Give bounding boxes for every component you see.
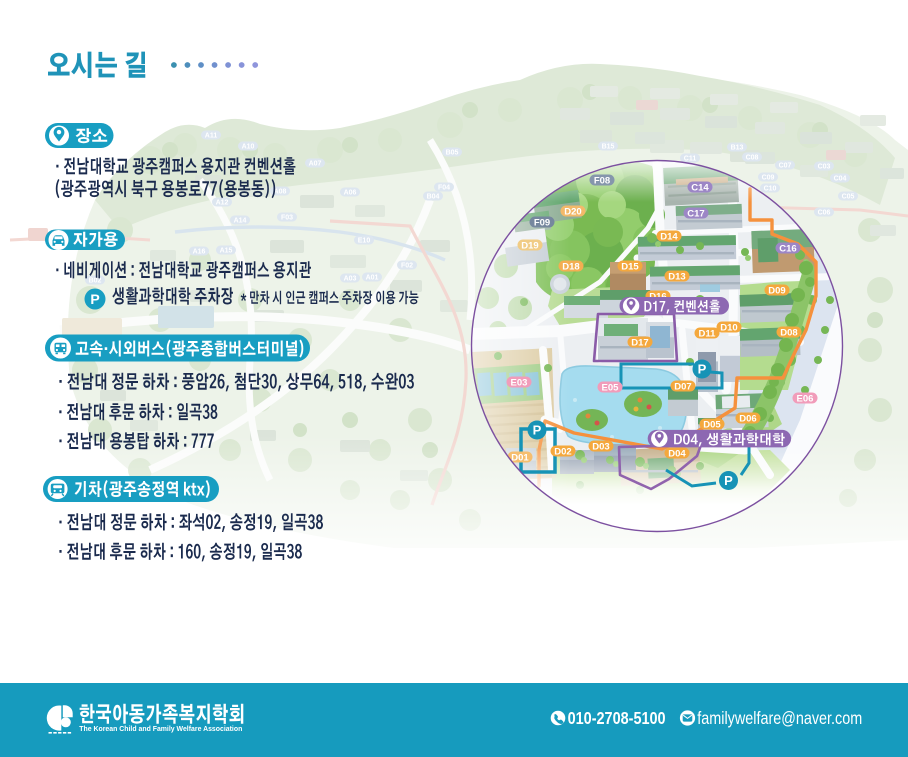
- svg-text:D17: D17: [631, 337, 648, 348]
- svg-text:F09: F09: [534, 217, 550, 228]
- svg-text:D19: D19: [521, 240, 538, 251]
- svg-text:E03: E03: [511, 377, 528, 388]
- svg-text:The Korean Child and Family We: The Korean Child and Family Welfare Asso…: [79, 724, 242, 733]
- svg-text:D15: D15: [621, 261, 639, 272]
- svg-text:E05: E05: [602, 382, 620, 393]
- svg-text:D10: D10: [720, 322, 737, 333]
- svg-text:P: P: [90, 291, 99, 307]
- svg-text:D08: D08: [780, 327, 797, 338]
- svg-text:D04: D04: [668, 448, 686, 459]
- svg-text:C17: C17: [687, 208, 704, 219]
- svg-text:D11: D11: [699, 328, 717, 339]
- svg-text:D20: D20: [564, 206, 581, 217]
- svg-text:familywelfare@naver.com: familywelfare@naver.com: [697, 708, 862, 728]
- svg-text:P: P: [533, 423, 542, 438]
- svg-text:P: P: [698, 362, 707, 377]
- svg-text:D05: D05: [703, 419, 721, 430]
- svg-text:D09: D09: [768, 285, 785, 296]
- svg-text:E06: E06: [797, 393, 814, 404]
- svg-text:D02: D02: [554, 446, 571, 457]
- svg-text:010-2708-5100: 010-2708-5100: [568, 708, 666, 728]
- svg-text:F08: F08: [594, 175, 610, 186]
- svg-text:C14: C14: [691, 182, 709, 193]
- svg-text:C16: C16: [779, 243, 796, 254]
- svg-text:P: P: [724, 473, 733, 488]
- svg-text:D14: D14: [660, 231, 678, 242]
- svg-text:D18: D18: [562, 261, 579, 272]
- svg-text:D01: D01: [511, 452, 529, 463]
- svg-text:D03: D03: [592, 441, 609, 452]
- svg-text:D07: D07: [674, 381, 691, 392]
- svg-text:D13: D13: [668, 271, 685, 282]
- svg-text:D06: D06: [739, 413, 756, 424]
